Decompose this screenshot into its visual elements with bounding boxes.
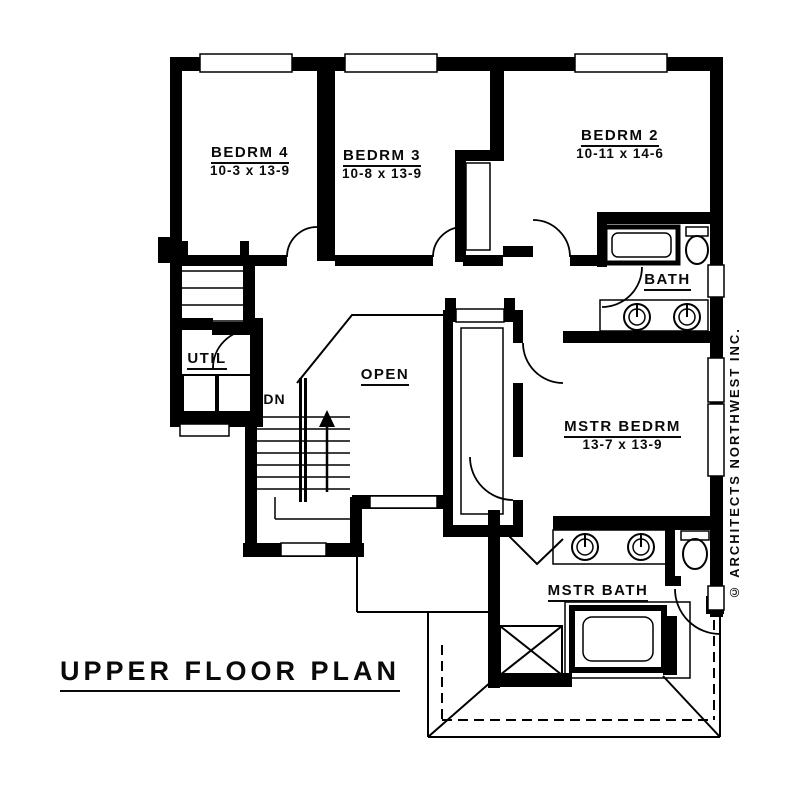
- room-label-open: OPEN: [340, 366, 430, 383]
- room-label-bedrm3: BEDRM 3: [312, 147, 452, 164]
- stair-direction-arrow: [319, 410, 335, 427]
- bathtub: [612, 233, 671, 257]
- floor-plan-canvas: BEDRM 4 10-3 x 13-9 BEDRM 3 10-8 x 13-9 …: [0, 0, 800, 789]
- linen-shelves: [182, 271, 243, 321]
- room-label-mstr-bath: MSTR BATH: [528, 582, 668, 599]
- room-dims-bedrm2: 10-11 x 14-6: [550, 146, 690, 162]
- copyright-text: © ARCHITECTS NORTHWEST INC.: [727, 295, 742, 600]
- room-label-bedrm2: BEDRM 2: [550, 127, 690, 144]
- room-dims-bedrm3: 10-8 x 13-9: [312, 166, 452, 182]
- washer-dryer: [183, 375, 252, 412]
- room-dims-mstr-bedrm: 13-7 x 13-9: [545, 437, 700, 453]
- toilet-bowl: [686, 236, 708, 264]
- room-label-util: UTIL: [172, 350, 242, 367]
- closet-lines: [461, 163, 503, 514]
- master-tub: [583, 617, 653, 661]
- room-label-mstr-bedrm: MSTR BEDRM: [545, 418, 700, 435]
- room-label-bedrm4: BEDRM 4: [180, 144, 320, 161]
- vanity-counter: [553, 530, 667, 564]
- room-label-bath: BATH: [620, 271, 715, 288]
- toilet-tank: [686, 227, 708, 236]
- plan-title: UPPER FLOOR PLAN: [60, 656, 400, 692]
- toilet-bowl: [683, 539, 707, 569]
- stair-down-label: DN: [252, 391, 297, 407]
- shower-skylight-box: [500, 626, 562, 675]
- room-dims-bedrm4: 10-3 x 13-9: [180, 163, 320, 179]
